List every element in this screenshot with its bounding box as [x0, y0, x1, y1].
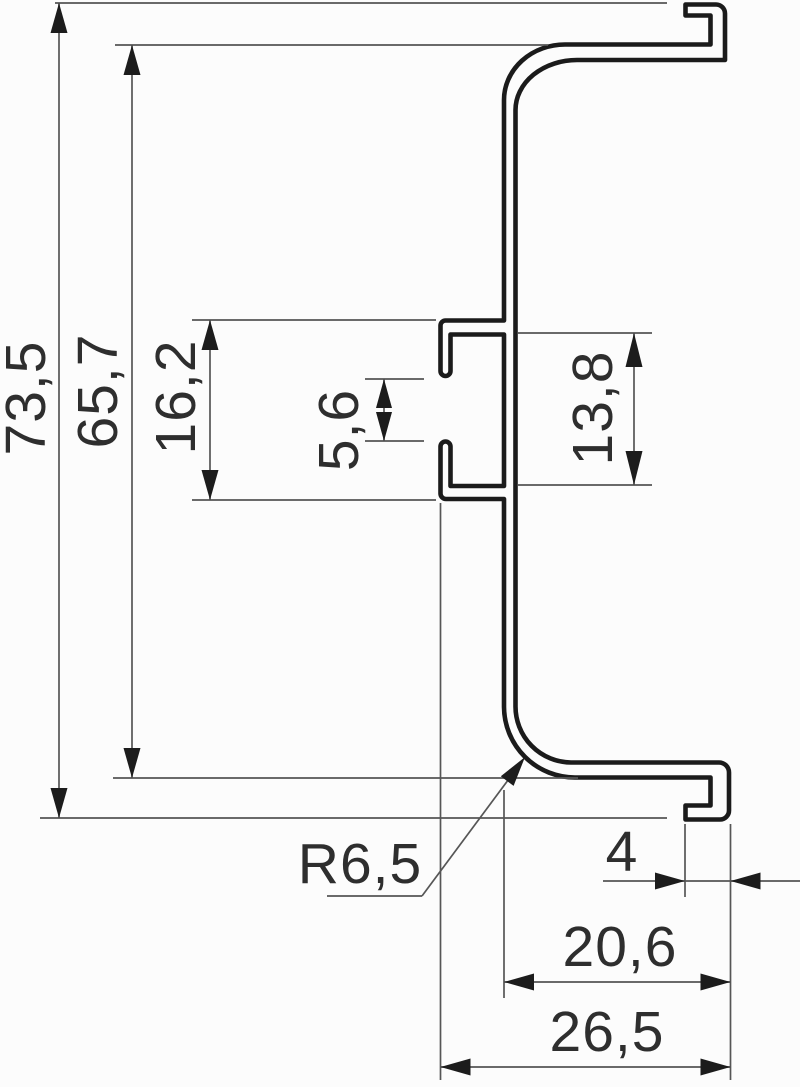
arrow-depth-to-web-left — [504, 974, 534, 991]
arrow-overall-height-down — [51, 788, 68, 818]
radius-leader-arrow — [501, 757, 525, 786]
arrow-clip-inner-up — [626, 333, 643, 367]
dimension-labels: 73,5 65,7 16,2 5,6 13,8 R6,5 4 20,6 26,5 — [0, 334, 677, 1064]
dim-label-clip-gap: 5,6 — [307, 389, 371, 471]
dim-label-depth-to-web: 20,6 — [563, 915, 678, 979]
arrow-depth-to-web-right — [701, 974, 731, 991]
dimension-lines — [59, 3, 800, 1067]
arrow-overall-depth-right — [701, 1059, 731, 1076]
technical-drawing-canvas: 73,5 65,7 16,2 5,6 13,8 R6,5 4 20,6 26,5 — [0, 0, 800, 1087]
arrow-clip-inner-down — [626, 451, 643, 485]
arrow-hook-depth-right — [731, 873, 761, 890]
arrow-clip-gap-down — [376, 412, 392, 441]
arrow-overall-depth-left — [441, 1059, 471, 1076]
arrow-hook-depth-left — [655, 873, 685, 890]
dim-label-overall-depth: 26,5 — [550, 1000, 665, 1064]
dim-label-clip-outer-height: 16,2 — [144, 340, 208, 455]
dim-label-inner-height: 65,7 — [66, 334, 130, 449]
arrow-clip-gap-up — [376, 379, 392, 408]
dim-label-overall-height: 73,5 — [0, 341, 58, 456]
arrow-inner-height-down — [124, 748, 141, 778]
arrow-clip-outer-down — [202, 470, 219, 500]
dim-label-clip-inner-height: 13,8 — [561, 351, 625, 466]
dim-label-hook-depth: 4 — [606, 820, 639, 884]
arrow-inner-height-up — [124, 45, 141, 75]
radius-leader-line — [422, 764, 520, 896]
arrow-overall-height-up — [51, 3, 68, 33]
drawing-sheet: 73,5 65,7 16,2 5,6 13,8 R6,5 4 20,6 26,5 — [0, 0, 800, 1087]
dim-label-bend-radius: R6,5 — [298, 832, 422, 896]
